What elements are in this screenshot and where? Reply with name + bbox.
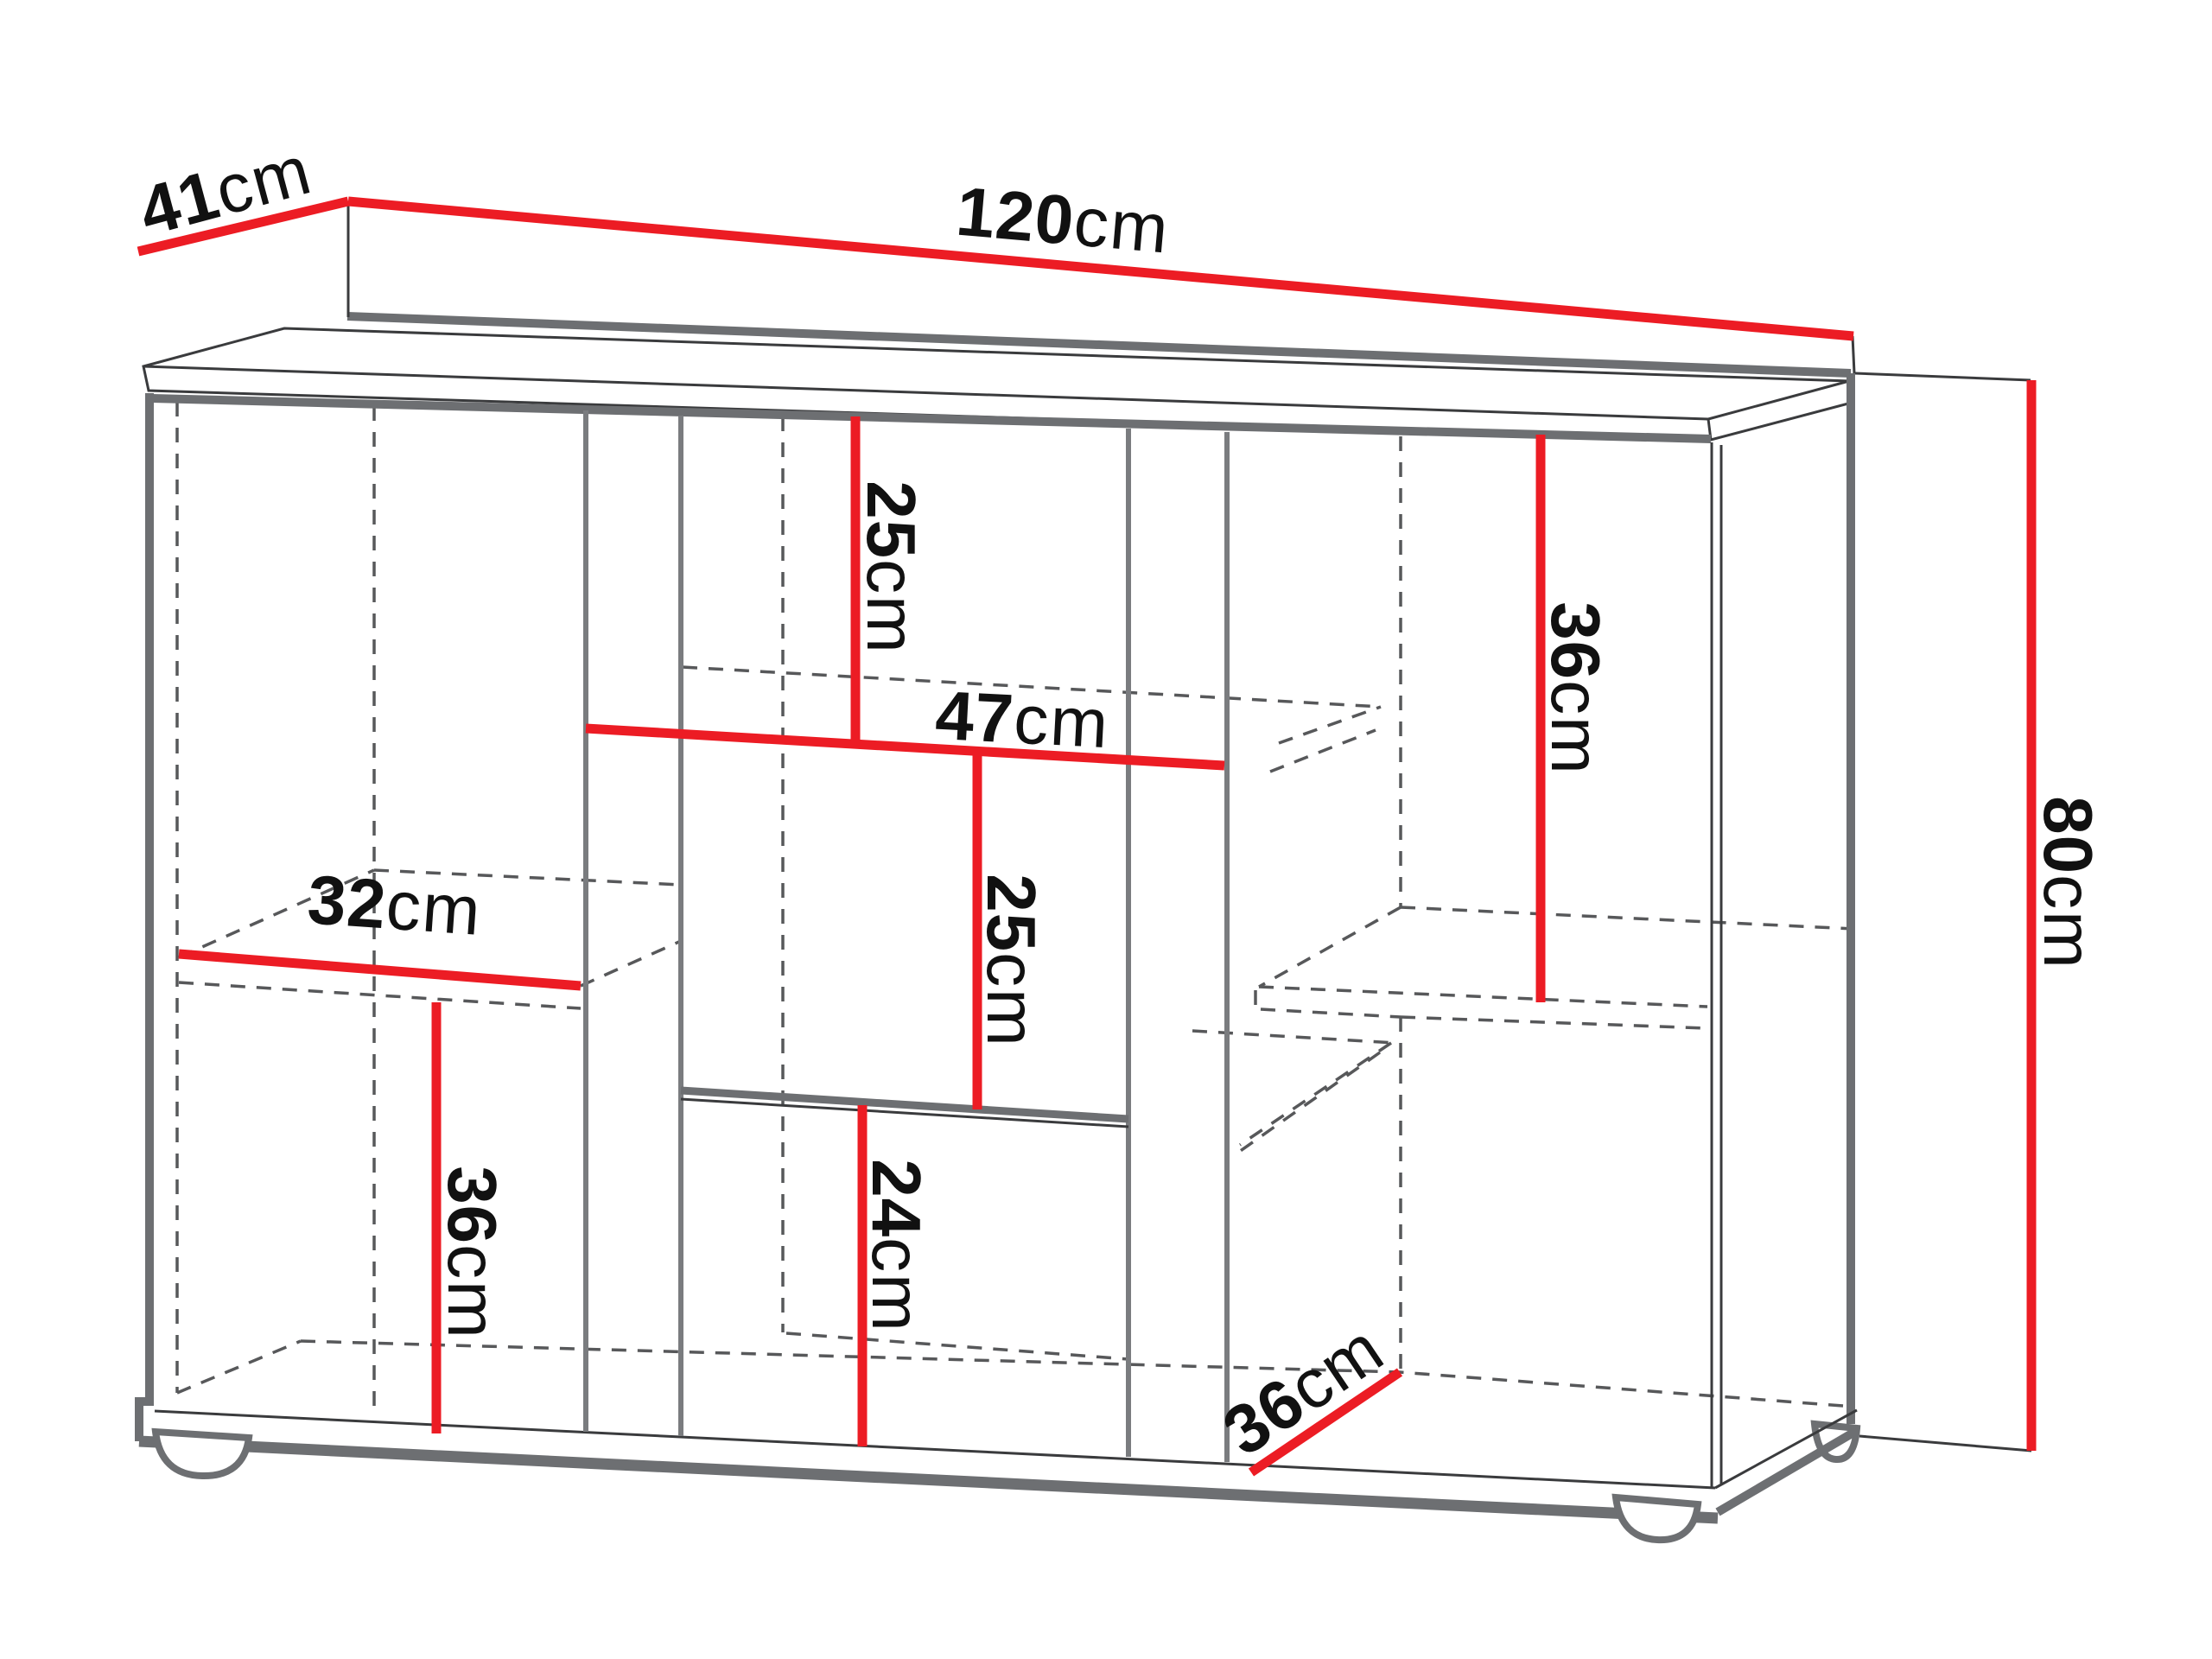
connector-width-right-end	[1853, 336, 1854, 373]
label-right-compartment-36cm: 36cm	[1537, 601, 1614, 776]
hidden-floor-back-edge	[301, 1341, 1854, 1407]
label-shelf-width-47cm: 47cm	[933, 677, 1111, 762]
label-bottom-shelf-depth-36cm: 36cm	[1210, 1309, 1397, 1471]
hidden-middle-floor-back-edge	[786, 1333, 1128, 1359]
hidden-right-shelf-bottom-edge-left	[1261, 1009, 1401, 1017]
hidden-left-shelf-bottom-front-edge	[179, 982, 581, 1008]
carcass-left-edge	[139, 393, 149, 1441]
label-bottom-compartment-24cm: 24cm	[858, 1159, 935, 1333]
label-top-compartment-25cm: 25cm	[853, 480, 930, 655]
plinth-bottom-edge	[139, 1441, 1718, 1518]
hidden-mid-shelf-depth-edge-bottom	[1233, 1052, 1380, 1156]
connector-height-bottom	[1859, 1436, 2031, 1451]
cabinet-dimension-diagram: 41cm 120cm 80cm 25cm 47cm 25cm 36cm 32cm…	[0, 0, 2212, 1659]
hidden-right-shelf-back-edge	[1401, 907, 1854, 929]
hidden-right-shelf-bottom-edge-right	[1401, 1017, 1707, 1028]
label-left-compartment-36cm: 36cm	[434, 1166, 511, 1340]
hidden-mid-shelf-depth-edge-top	[1240, 1043, 1391, 1145]
label-middle-compartment-25cm: 25cm	[973, 874, 1050, 1048]
label-width-120cm: 120cm	[953, 173, 1173, 268]
hidden-mid-shelf-back-edge	[1192, 1031, 1395, 1043]
hidden-right-shelf-front-top-edge	[1259, 987, 1707, 1007]
cabinet-foot-front-right	[1616, 1497, 1698, 1540]
hidden-right-shelf-left-depth-edge	[1259, 907, 1401, 987]
hidden-floor-left-depth-edge	[177, 1341, 301, 1393]
label-height-80cm: 80cm	[2030, 796, 2107, 970]
connector-height-top	[1855, 373, 2031, 380]
dimension-line-left-shelf-32	[179, 954, 581, 986]
cabinet-foot-front-left	[156, 1432, 249, 1476]
side-bottom-edge	[1718, 1430, 1858, 1512]
label-left-shelf-32cm: 32cm	[305, 861, 484, 950]
hidden-47-shelf-right-depth-edge-bottom	[1270, 730, 1376, 772]
hidden-left-shelf-right-depth-edge	[581, 941, 681, 986]
diagram-page: 41cm 120cm 80cm 25cm 47cm 25cm 36cm 32cm…	[0, 0, 2212, 1659]
middle-shelf-front-edge	[681, 1090, 1128, 1119]
hidden-47-shelf-right-depth-edge-top	[1279, 707, 1381, 743]
